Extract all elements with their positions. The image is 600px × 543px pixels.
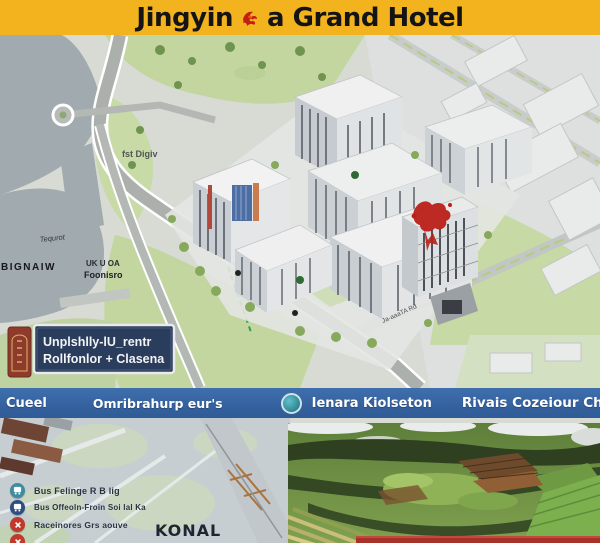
brand-name-left: Jingyin bbox=[136, 3, 233, 33]
transit-circle-icon bbox=[281, 393, 302, 414]
car-dot bbox=[235, 270, 241, 276]
hotel-map-flyer: Jingyin a Grand Hotel bbox=[0, 0, 600, 543]
legend-row: Bus Felinge R B lig bbox=[10, 482, 280, 499]
inset-caption: KONAL bbox=[155, 521, 221, 540]
legend-row bbox=[10, 533, 280, 543]
legend-row: Raceinores Grs aouve bbox=[10, 516, 280, 533]
header-banner: Jingyin a Grand Hotel bbox=[0, 0, 600, 36]
legend-row: Bus Offeoln-Froin Soi lal Ka bbox=[10, 499, 280, 516]
legend-bar-item-1: Cueel bbox=[6, 396, 47, 411]
inset-legend: Bus Felinge R B lig Bus Offeoln-Froin So… bbox=[10, 482, 280, 543]
legend-row-label: Raceinores Grs aouve bbox=[34, 520, 128, 530]
bus-teal-icon bbox=[10, 483, 25, 498]
direction-sign: Unplshlly-lU_rentr Rollfonlor + Clasena bbox=[34, 325, 174, 373]
legend-bar: Cueel Omribrahurp eur's Ienara Kiolseton… bbox=[0, 388, 600, 418]
legend-row-label: Bus Felinge R B lig bbox=[34, 486, 120, 496]
legend-bar-item-4: Rivais Cozeiour Chupeunoreon bbox=[462, 395, 600, 411]
sign-line-2: Rollfonlor + Clasena bbox=[43, 352, 165, 366]
district-label: fst Digiv bbox=[122, 149, 158, 159]
x-red-icon bbox=[10, 534, 25, 543]
bus-navy-icon bbox=[10, 500, 25, 515]
inset-map-panel: Bus Felinge R B lig Bus Offeoln-Froin So… bbox=[0, 418, 290, 543]
sign-line-1: Unplshlly-lU_rentr bbox=[43, 335, 151, 349]
red-banner bbox=[8, 327, 31, 377]
car-dot bbox=[292, 310, 298, 316]
legend-row-label: Bus Offeoln-Froin Soi lal Ka bbox=[34, 503, 146, 512]
brand-name-right: a Grand Hotel bbox=[267, 3, 464, 33]
page-title: Jingyin a Grand Hotel bbox=[136, 3, 463, 33]
x-red-icon bbox=[10, 517, 25, 532]
left-bold-label: BIGNAIW bbox=[1, 262, 56, 273]
aerial-photo bbox=[288, 423, 600, 543]
area-label-1: UK U OA bbox=[86, 259, 120, 268]
legend-bar-item-3: Ienara Kiolseton bbox=[312, 396, 432, 411]
photo-red-strip-highlight bbox=[356, 536, 600, 538]
hotel-logo-icon bbox=[239, 7, 261, 29]
area-label-2: Foonisro bbox=[84, 270, 123, 280]
site-map: fst Digiv Tequrot BIGNAIW UK U OA Foonis… bbox=[0, 35, 600, 388]
legend-bar-item-2: Omribrahurp eur's bbox=[93, 396, 223, 411]
